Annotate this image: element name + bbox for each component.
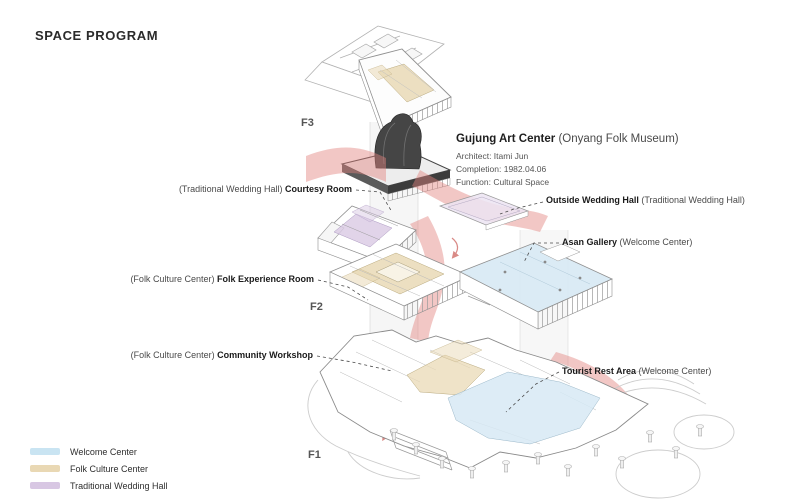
legend-swatch-welcome-center	[30, 448, 60, 455]
floor-label-f1: F1	[308, 449, 321, 461]
asan-gallery-slab	[460, 243, 612, 329]
label-outside-wedding-hall: Outside Wedding Hall (Traditional Weddin…	[546, 195, 745, 205]
building-function: Function: Cultural Space	[456, 176, 716, 189]
building-info: Gujung Art Center (Onyang Folk Museum) A…	[456, 133, 716, 189]
legend-swatch-traditional-wedding-hall	[30, 482, 60, 489]
building-name-paren: (Onyang Folk Museum)	[558, 133, 678, 145]
floor-label-f2: F2	[310, 301, 323, 313]
label-bold: Folk Experience Room	[217, 274, 314, 284]
legend-label: Folk Culture Center	[70, 464, 148, 474]
building-name-bold: Gujung Art Center	[456, 133, 555, 145]
label-bold: Courtesy Room	[285, 184, 352, 194]
floor-label-f3: F3	[301, 117, 314, 129]
space-program-diagram: SPACE PROGRAM Gujung Art Center (Onyang …	[0, 0, 800, 500]
legend: Welcome Center Folk Culture Center Tradi…	[30, 443, 168, 494]
legend-label: Welcome Center	[70, 447, 137, 457]
label-bold: Outside Wedding Hall	[546, 195, 639, 205]
legend-label: Traditional Wedding Hall	[70, 481, 168, 491]
f1-ground-floor	[308, 330, 734, 498]
label-bold: Community Workshop	[217, 350, 313, 360]
label-community-workshop: (Folk Culture Center) Community Workshop	[131, 350, 313, 360]
label-courtesy-room: (Traditional Wedding Hall) Courtesy Room	[179, 184, 352, 194]
label-pre: (Traditional Wedding Hall)	[179, 184, 285, 194]
label-folk-experience-room: (Folk Culture Center) Folk Experience Ro…	[130, 274, 314, 284]
label-post: (Welcome Center)	[617, 237, 692, 247]
label-pre: (Folk Culture Center)	[131, 350, 218, 360]
label-asan-gallery: Asan Gallery (Welcome Center)	[562, 237, 692, 247]
page-title: SPACE PROGRAM	[35, 28, 158, 43]
label-pre: (Folk Culture Center)	[130, 274, 217, 284]
label-post: (Welcome Center)	[636, 366, 711, 376]
label-bold: Asan Gallery	[562, 237, 617, 247]
label-bold: Tourist Rest Area	[562, 366, 636, 376]
label-tourist-rest-area: Tourist Rest Area (Welcome Center)	[562, 366, 711, 376]
building-name: Gujung Art Center (Onyang Folk Museum)	[456, 133, 716, 145]
legend-row-traditional-wedding-hall: Traditional Wedding Hall	[30, 477, 168, 494]
legend-row-welcome-center: Welcome Center	[30, 443, 168, 460]
building-architect: Architect: Itami Jun	[456, 150, 716, 163]
legend-swatch-folk-culture-center	[30, 465, 60, 472]
legend-row-folk-culture-center: Folk Culture Center	[30, 460, 168, 477]
building-completion: Completion: 1982.04.06	[456, 163, 716, 176]
axonometric-drawing	[0, 0, 800, 500]
label-post: (Traditional Wedding Hall)	[639, 195, 745, 205]
